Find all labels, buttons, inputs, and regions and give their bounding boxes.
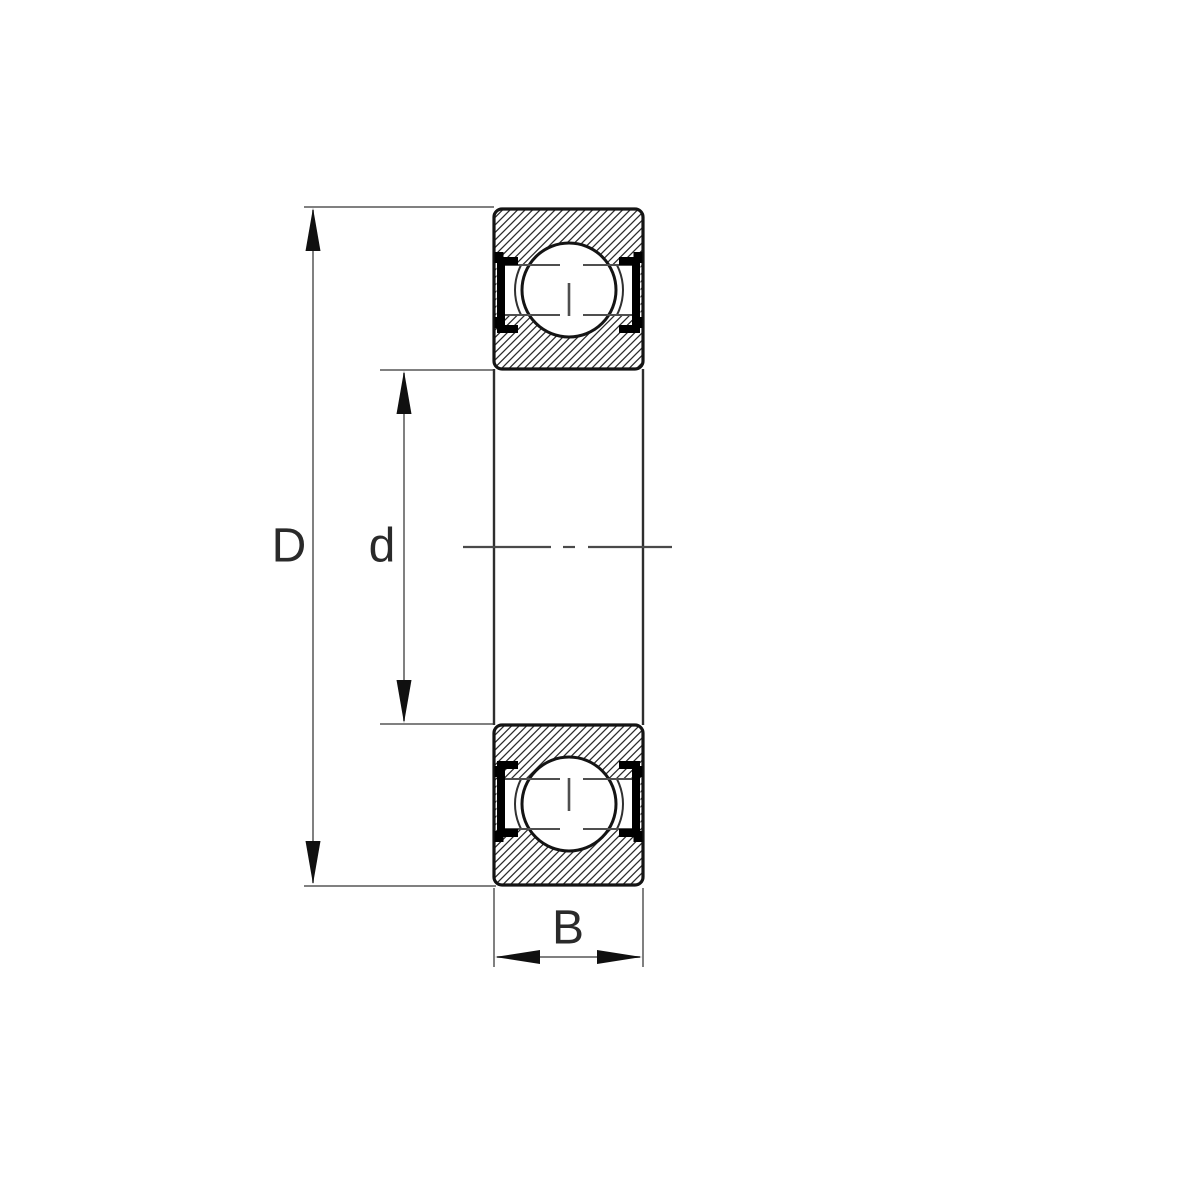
bearing-cross-section-drawing: D d B bbox=[0, 0, 1200, 1200]
seal-hook-bottom bbox=[505, 325, 518, 333]
seal-anchor-bottom bbox=[495, 831, 504, 842]
arrow-left-icon bbox=[495, 950, 540, 964]
bearing-section-top bbox=[494, 209, 643, 369]
seal-anchor-bottom bbox=[495, 317, 504, 328]
seal-anchor-bottom bbox=[634, 317, 643, 328]
seal-anchor-top bbox=[634, 766, 643, 777]
arrow-down-icon bbox=[306, 841, 321, 884]
seal-hook-bottom bbox=[505, 829, 518, 837]
width-label: B bbox=[552, 902, 584, 955]
seal-hook-bottom bbox=[619, 325, 632, 333]
bearing-drawing-canvas: D d B bbox=[0, 0, 1200, 1200]
arrow-up-icon bbox=[306, 208, 321, 251]
arrow-up-icon bbox=[397, 371, 412, 414]
seal-hook-top bbox=[619, 257, 632, 265]
seal-hook-top bbox=[505, 257, 518, 265]
seal-hook-top bbox=[619, 761, 632, 769]
arrow-down-icon bbox=[397, 680, 412, 723]
bore-diameter-label: d bbox=[369, 520, 396, 573]
outer-diameter-label: D bbox=[272, 520, 307, 573]
dimension-width-group: B bbox=[494, 888, 643, 967]
seal-hook-bottom bbox=[619, 829, 632, 837]
arrow-right-icon bbox=[597, 950, 642, 964]
bearing-section-bottom bbox=[494, 725, 643, 885]
seal-hook-top bbox=[505, 761, 518, 769]
seal-anchor-top bbox=[495, 252, 504, 263]
seal-anchor-bottom bbox=[634, 831, 643, 842]
seal-anchor-top bbox=[495, 766, 504, 777]
seal-anchor-top bbox=[634, 252, 643, 263]
